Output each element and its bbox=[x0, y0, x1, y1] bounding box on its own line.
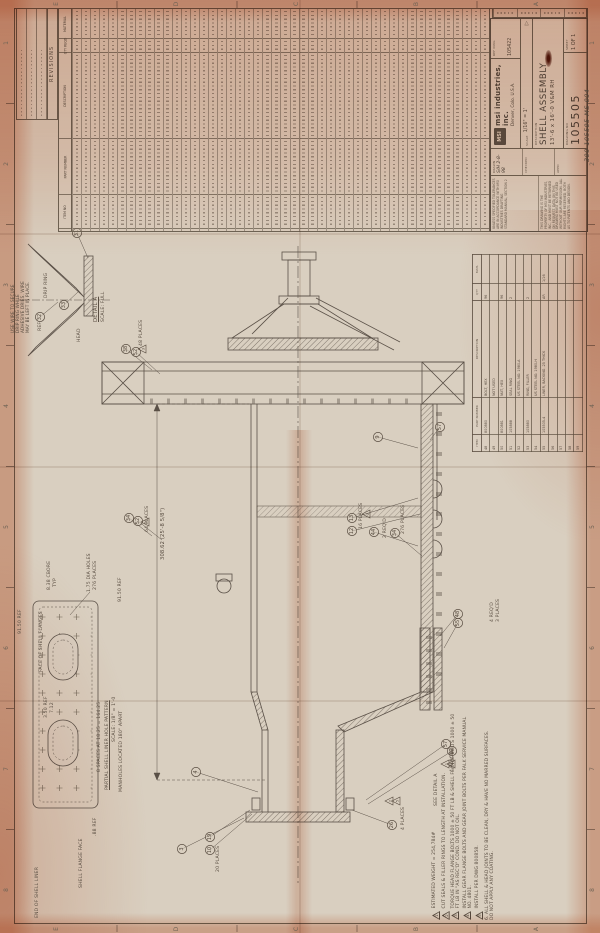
checked-field: CHECKED bbox=[523, 149, 555, 175]
revision-cell bbox=[540, 9, 564, 17]
mid-table-row: 49NOT USED bbox=[490, 255, 498, 452]
zone-letter-top: D bbox=[172, 0, 182, 9]
note-text: CUT SEALS & FILLER RINGS TO LENGTH AT IN… bbox=[442, 714, 447, 909]
drawing-label: 48 PLACES bbox=[139, 320, 144, 346]
parts-table-row bbox=[308, 9, 317, 231]
parts-table-row bbox=[145, 9, 154, 231]
drawing-size: 13'-6 x 16'-0 V&M RH bbox=[550, 22, 556, 145]
parts-table-row bbox=[389, 9, 398, 231]
company-name: msi industries, inc. bbox=[494, 59, 510, 126]
zone-number-left: 2 bbox=[2, 159, 12, 169]
parts-table-row bbox=[190, 9, 199, 231]
parts-table-rows bbox=[72, 9, 489, 231]
note-flag-icon: 5 bbox=[475, 911, 483, 920]
parts-table-row bbox=[199, 9, 208, 231]
parts-table-row bbox=[407, 9, 416, 231]
parts-table-row bbox=[244, 9, 253, 231]
company-location: Denver, Colo. U.S.A. bbox=[511, 59, 516, 126]
zone-letter-bottom: A bbox=[532, 924, 542, 933]
mid-table-header: DESCRIPTION bbox=[473, 301, 482, 398]
parts-list-table: MATERIALQTY REQDDESCRIPTIONPART NUMBERIT… bbox=[58, 8, 490, 232]
drawing-label: 276 PLACES bbox=[93, 561, 98, 590]
parts-table-row bbox=[425, 9, 434, 231]
parts-header-band: PART NUMBER bbox=[59, 139, 71, 195]
parts-table-row bbox=[444, 9, 453, 231]
zone-number-right: 3 bbox=[588, 280, 598, 290]
parts-table-row bbox=[108, 9, 117, 231]
zone-letter-top: C bbox=[292, 0, 302, 9]
drawing-label: 1.75 DIA HOLES bbox=[87, 553, 92, 592]
parts-table-row bbox=[81, 9, 90, 231]
drawn-field: DRAWN S/H 2-8-98 bbox=[491, 149, 523, 175]
scale-field: SCALE 1/16" = 1' ▷ bbox=[521, 19, 533, 148]
drawing-label: 3 PLACES bbox=[496, 599, 501, 622]
parts-table-row bbox=[480, 9, 489, 231]
mid-table-row: 52US STEEL NO. 1980-A bbox=[515, 255, 523, 452]
drawing-label: 20 PLACES bbox=[216, 846, 221, 872]
parts-table-row bbox=[172, 9, 181, 231]
parts-table-row bbox=[290, 9, 299, 231]
revision-row bbox=[37, 9, 47, 119]
zone-number-left: 8 bbox=[2, 885, 12, 895]
revision-cell bbox=[564, 9, 588, 17]
drawing-label: 276 PLACES bbox=[401, 505, 406, 534]
parts-table-row bbox=[353, 9, 362, 231]
zone-number-left: 5 bbox=[2, 522, 12, 532]
title-block-notes: UNLESS SPECIFIED TOLERANCES ARE IN ACCOR… bbox=[491, 175, 587, 231]
parts-table-row bbox=[416, 9, 425, 231]
parts-table-row bbox=[262, 9, 271, 231]
parts-table-row bbox=[217, 9, 226, 231]
parts-table-row bbox=[453, 9, 462, 231]
parts-table-row bbox=[208, 9, 217, 231]
drawing-label: SEE DETAIL A bbox=[434, 773, 439, 806]
zone-letter-bottom: D bbox=[172, 924, 182, 933]
parts-table-row bbox=[163, 9, 172, 231]
parts-table-row bbox=[226, 9, 235, 231]
tolerance-note: UNLESS SPECIFIED TOLERANCES ARE IN ACCOR… bbox=[491, 176, 539, 231]
mid-table-header: QTY bbox=[473, 284, 482, 301]
drawing-label: 4 REQ'D bbox=[490, 602, 495, 622]
description-field: DESCRIPTION SHELL ASSEMBLY 13'-6 x 16'-0… bbox=[533, 19, 564, 148]
parts-table-row bbox=[371, 9, 380, 231]
mid-table-row: 55105505-4LINER, BACKING .25 THICKAR1/16 bbox=[540, 255, 548, 452]
drawing-label: 4 PLACES bbox=[401, 807, 406, 830]
zone-number-left: 3 bbox=[2, 280, 12, 290]
parts-table-row bbox=[99, 9, 108, 231]
revision-cell bbox=[493, 9, 517, 17]
drawing-label: TYP bbox=[53, 578, 58, 587]
zone-letter-bottom: B bbox=[412, 924, 422, 933]
drawing-label: .88 REF bbox=[93, 817, 98, 836]
signature-block: DRAWN S/H 2-8-98 CHECKED APPD bbox=[491, 148, 587, 175]
drawing-label: 7.12 bbox=[50, 702, 55, 713]
zone-letter-top: E bbox=[52, 0, 62, 9]
drawing-label: 64 PLACES bbox=[145, 506, 150, 532]
mid-table-header: PART NUMBER bbox=[473, 398, 482, 435]
parts-table-row bbox=[435, 9, 444, 231]
parts-table-row bbox=[362, 9, 371, 231]
note-flag-icon: 4 bbox=[463, 911, 471, 920]
note-text: INSTALL PER DWG 800858. bbox=[475, 714, 480, 909]
drawing-label: PARTIAL SHELL LINER HOLE PATTERN bbox=[105, 700, 110, 790]
zone-letter-top: A bbox=[532, 0, 542, 9]
drawing-label: 3.50 REF bbox=[44, 696, 49, 718]
parts-table-row bbox=[126, 9, 135, 231]
note-text: ESTIMATED WEIGHT = 254,784# bbox=[432, 714, 437, 909]
mid-table-header: MATL bbox=[473, 255, 482, 284]
zone-number-left: 1 bbox=[2, 38, 12, 48]
note-text: 6. ALL SHELL & HEAD JOINTS TO BE CLEAN, … bbox=[485, 725, 495, 920]
revision-cell bbox=[517, 9, 541, 17]
sheet-field: SHEET 1 OF 1 bbox=[564, 19, 587, 53]
parts-table-row bbox=[344, 9, 353, 231]
drawing-label: 16 PLACES bbox=[359, 503, 364, 529]
drawing-label: MAY BE LEFT IN PLACE. bbox=[25, 281, 30, 333]
parts-table-row bbox=[253, 9, 262, 231]
parts-list-table-continued: ITEMPART NUMBERDESCRIPTIONQTYMATL4880088… bbox=[472, 270, 580, 452]
parts-table-row bbox=[317, 9, 326, 231]
drawing-label: 91.50 REF bbox=[18, 609, 23, 634]
drawing-label: 2 REQ'D bbox=[383, 518, 388, 538]
parts-table-row bbox=[462, 9, 471, 231]
drawing-label: 8.38 CBORE bbox=[47, 561, 52, 590]
drawing-label: 91.50 REF bbox=[118, 577, 123, 602]
parts-table-row bbox=[117, 9, 126, 231]
mid-table-row: 56 bbox=[549, 255, 557, 452]
revision-row bbox=[27, 9, 37, 119]
parts-header-band: DESCRIPTION bbox=[59, 53, 71, 139]
mid-table-row: 51105888SEAL RING2 bbox=[507, 255, 515, 452]
parts-header-band: MATERIAL bbox=[59, 9, 71, 39]
drawing-label: DRIP RING bbox=[44, 273, 49, 298]
zone-number-right: 5 bbox=[588, 522, 598, 532]
parts-table-row bbox=[235, 9, 244, 231]
parts-table-row bbox=[398, 9, 407, 231]
zone-number-right: 4 bbox=[588, 401, 598, 411]
parts-table-row bbox=[72, 9, 81, 231]
parts-table-row bbox=[299, 9, 308, 231]
note-row-2: 2CUT SEALS & FILLER RINGS TO LENGTH AT I… bbox=[442, 630, 450, 920]
property-note: THIS DRAWING IS THE PROPERTY OF MSI INDU… bbox=[539, 176, 587, 231]
note-row-6: 6. ALL SHELL & HEAD JOINTS TO BE CLEAN, … bbox=[485, 630, 495, 920]
zone-number-right: 1 bbox=[588, 38, 598, 48]
note-row-3: 3TORQUE HEAD FLANGE BOLTS 1000 ± 50 FT L… bbox=[451, 630, 461, 920]
drawing-number: 105505 bbox=[569, 56, 582, 145]
zone-letter-top: B bbox=[412, 0, 422, 9]
note-flag-icon: 2 bbox=[442, 911, 450, 920]
parts-table-row bbox=[135, 9, 144, 231]
parts-table-row bbox=[326, 9, 335, 231]
drawing-label: FACE OF SHELL FLANGES bbox=[39, 611, 44, 672]
parts-table-row bbox=[380, 9, 389, 231]
drawing-label: END OF SHELL LINER bbox=[35, 867, 40, 918]
drawing-description: SHELL ASSEMBLY bbox=[539, 22, 549, 145]
mid-table-row: 54US STEEL NO. 1980-H bbox=[532, 255, 540, 452]
mid-table-header: ITEM bbox=[473, 435, 482, 452]
zone-letter-bottom: C bbox=[292, 924, 302, 933]
zone-number-right: 7 bbox=[588, 764, 598, 774]
drawing-label: SHELL FLANGE FACE bbox=[79, 838, 84, 888]
drawing-label: HEAD bbox=[77, 328, 82, 342]
parts-table-row bbox=[181, 9, 190, 231]
zone-number-left: 6 bbox=[2, 643, 12, 653]
drawing-label: DETAIL A bbox=[93, 297, 99, 322]
revision-strip bbox=[492, 8, 588, 18]
zone-number-left: 4 bbox=[2, 401, 12, 411]
drawn-signature: S/H 2-8-98 bbox=[497, 151, 507, 173]
parts-table-header: MATERIALQTY REQDDESCRIPTIONPART NUMBERIT… bbox=[59, 9, 72, 231]
mid-table-row: 59 bbox=[574, 255, 582, 452]
zone-number-right: 8 bbox=[588, 885, 598, 895]
drawing-sheet: 3132333852345213124434957485557624319102… bbox=[0, 0, 600, 933]
parts-table-row bbox=[271, 9, 280, 231]
drawing-label: SCALE: 1/8" = 1'-0 bbox=[112, 697, 117, 742]
note-flag-icon: 1 bbox=[432, 911, 440, 920]
note-flag-icon: 3 bbox=[451, 911, 459, 920]
mid-table-row: 50800881NUT, HEX96 bbox=[498, 255, 506, 452]
parts-table-row bbox=[335, 9, 344, 231]
drawing-label: 4 PLACES bbox=[450, 749, 455, 772]
revision-row bbox=[17, 9, 27, 119]
parts-table-row bbox=[471, 9, 480, 231]
note-text: INSTALL GEAR FLANGE BOLTS AND GEAR JOINT… bbox=[463, 714, 473, 909]
handwritten-number: 300-105505-MS-004 bbox=[583, 89, 591, 162]
title-block: UNLESS SPECIFIED TOLERANCES ARE IN ACCOR… bbox=[490, 18, 588, 232]
parts-table-row bbox=[154, 9, 163, 231]
zone-number-left: 7 bbox=[2, 764, 12, 774]
note-text: TORQUE HEAD FLANGE BOLTS 1000 ± 50 FT LB… bbox=[451, 714, 461, 909]
parts-table-row bbox=[90, 9, 99, 231]
drawing-label: SCALE: FULL bbox=[101, 291, 106, 322]
revisions-block: REVISIONS bbox=[16, 8, 58, 120]
drawing-label: 8 SPACES AT 18.25 = 164.25 bbox=[97, 702, 102, 772]
mid-table-row: 57 bbox=[557, 255, 565, 452]
projection-symbol-icon: ▷ bbox=[524, 21, 530, 25]
mid-table-row: 53105880RING, FILLER2 bbox=[523, 255, 531, 452]
mid-table-row: 58 bbox=[565, 255, 573, 452]
parts-header-band: QTY REQD bbox=[59, 39, 71, 53]
note-row-5: 5INSTALL PER DWG 800858. bbox=[475, 630, 483, 920]
drawing-label: MANHOLES LOCATED 180° APART bbox=[119, 711, 124, 792]
msi-logo: MSI bbox=[494, 128, 506, 145]
parts-table-row bbox=[280, 9, 289, 231]
zone-number-right: 6 bbox=[588, 643, 598, 653]
ref-dwg-field: REF DWG 105422 bbox=[491, 19, 520, 59]
zone-number-right: 2 bbox=[588, 159, 598, 169]
drawing-label: REF bbox=[38, 322, 43, 331]
revisions-title: REVISIONS bbox=[47, 9, 57, 119]
note-row-4: 4INSTALL GEAR FLANGE BOLTS AND GEAR JOIN… bbox=[463, 630, 473, 920]
drawing-label: 308.62 (25'-8 5/8") bbox=[160, 508, 166, 560]
zone-letter-bottom: E bbox=[52, 924, 62, 933]
mid-table-row: 48800880BOLT, HEX96 bbox=[482, 255, 490, 452]
parts-header-band: ITEM NO bbox=[59, 195, 71, 229]
